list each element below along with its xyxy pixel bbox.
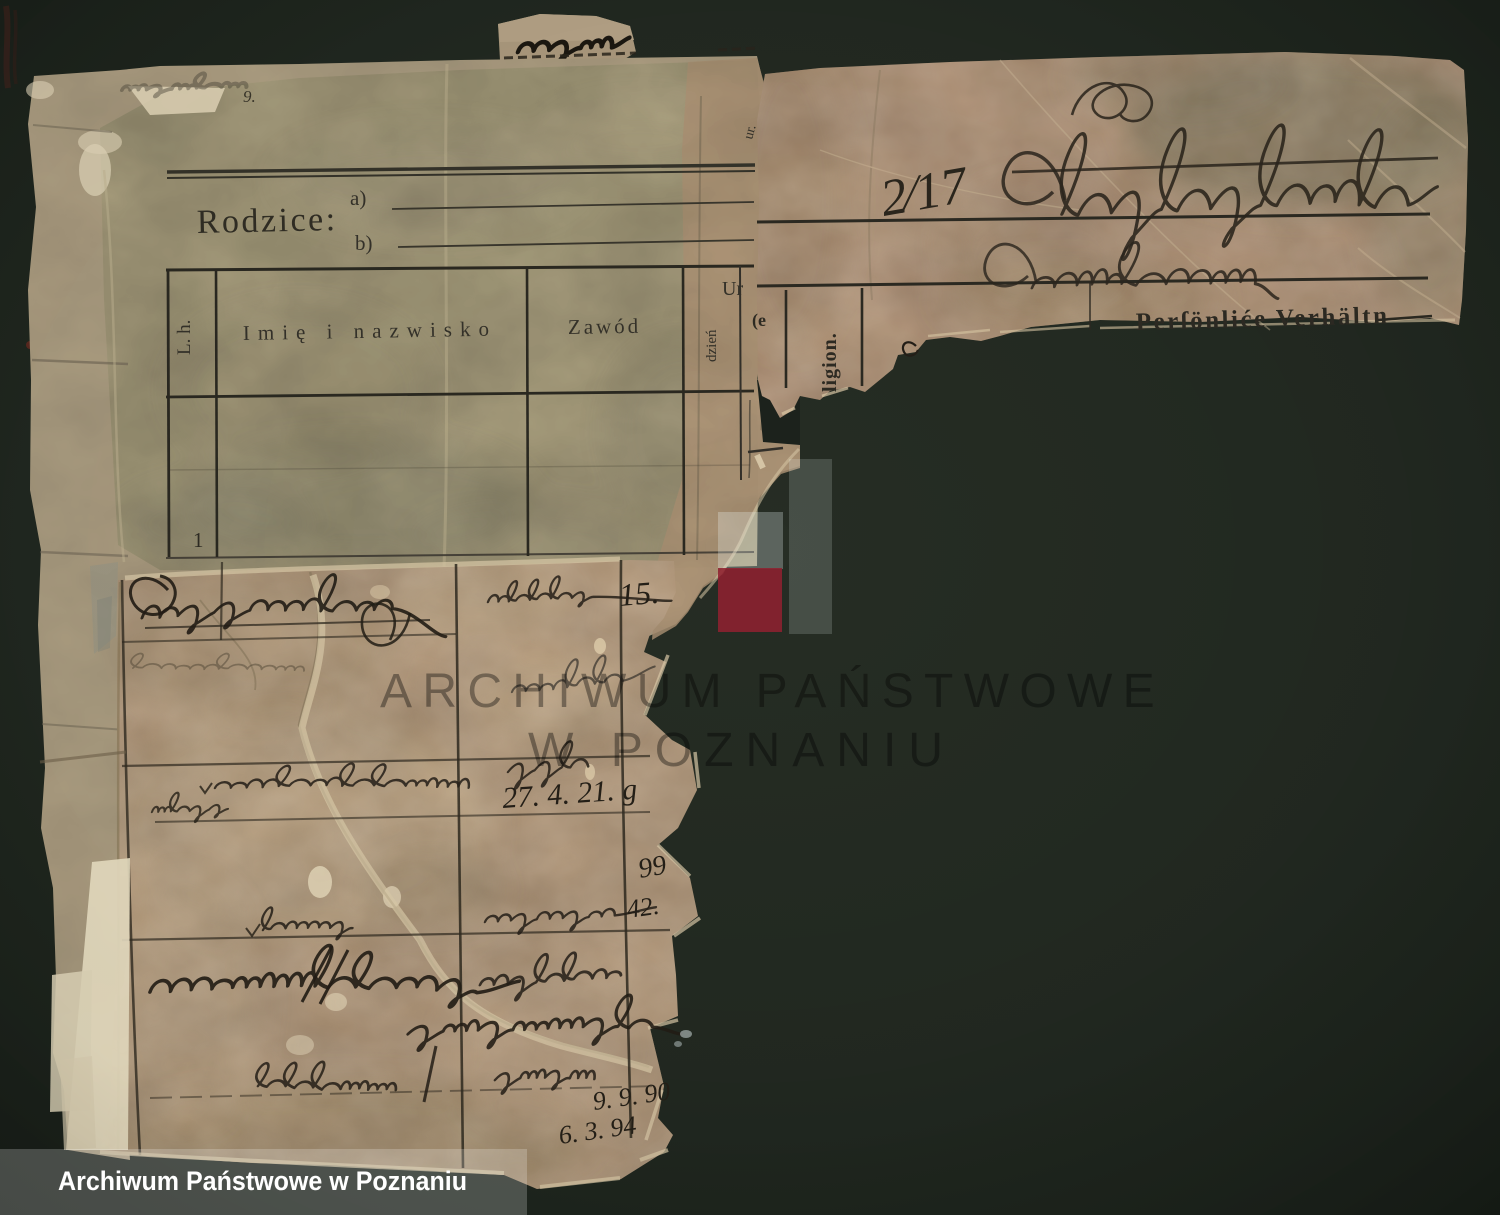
svg-text:ARCHIWUM PAŃSTWOWE: ARCHIWUM PAŃSTWOWE [380,665,1165,718]
svg-text:W POZNANIU: W POZNANIU [528,724,955,777]
svg-text:Archiwum Państwowe w Poznaniu: Archiwum Państwowe w Poznaniu [58,1166,467,1196]
